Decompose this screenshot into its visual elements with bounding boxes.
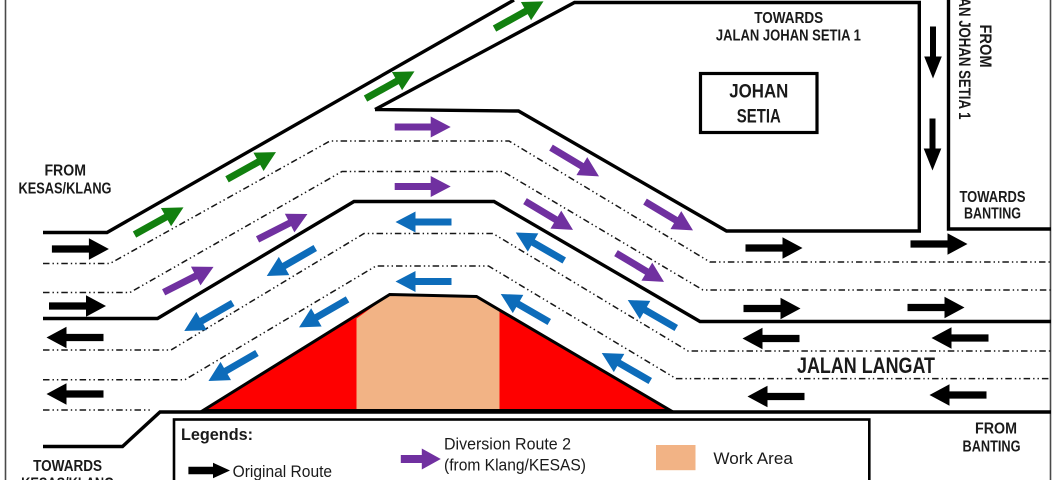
svg-text:KESAS/KLANG: KESAS/KLANG xyxy=(21,476,114,480)
svg-text:FROM: FROM xyxy=(975,421,1017,438)
svg-text:JALAN JOHAN SETIA 1: JALAN JOHAN SETIA 1 xyxy=(716,28,861,45)
svg-text:BANTING: BANTING xyxy=(963,439,1021,456)
svg-text:(from Klang/KESAS): (from Klang/KESAS) xyxy=(444,456,586,475)
svg-text:KESAS/KLANG: KESAS/KLANG xyxy=(19,181,112,198)
svg-text:Legends:: Legends: xyxy=(181,426,253,444)
svg-text:JALAN JOHAN SETIA 1: JALAN JOHAN SETIA 1 xyxy=(955,0,974,120)
svg-text:Work Area: Work Area xyxy=(713,449,793,468)
svg-text:JOHAN: JOHAN xyxy=(729,82,788,103)
svg-text:TOWARDS: TOWARDS xyxy=(33,458,102,475)
svg-text:FROM: FROM xyxy=(976,25,995,68)
svg-text:BANTING: BANTING xyxy=(964,206,1021,223)
svg-text:TOWARDS: TOWARDS xyxy=(754,10,823,27)
svg-text:TOWARDS: TOWARDS xyxy=(960,189,1026,206)
svg-text:SETIA: SETIA xyxy=(737,106,781,127)
svg-text:FROM: FROM xyxy=(44,163,86,180)
svg-text:Original Route: Original Route xyxy=(233,462,333,480)
svg-text:JALAN LANGAT: JALAN LANGAT xyxy=(797,353,935,378)
svg-text:Diversion Route 2: Diversion Route 2 xyxy=(444,435,571,454)
